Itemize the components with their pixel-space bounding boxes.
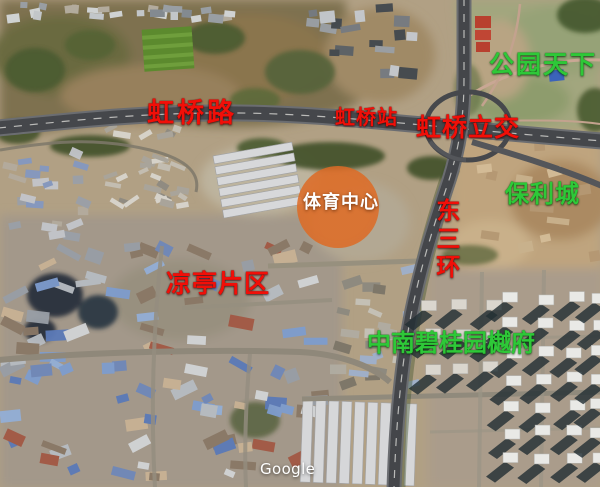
map-label-sports-center: 体育中心 <box>303 193 379 212</box>
map-label-zhongnan-biguiyuan-yuefu: 中南碧桂园樾府 <box>367 331 535 357</box>
map-label-park-tianxia: 公园天下 <box>489 51 597 78</box>
map-label-poly-city: 保利城 <box>505 182 580 208</box>
map-label-east-third-ring: 东三环 <box>432 198 458 282</box>
map-label-hongqiao-road: 虹桥路 <box>147 99 237 128</box>
satellite-map[interactable]: 虹桥路 虹桥站 虹桥立交 公园天下 保利城 体育中心 凉亭片区 东三环 中南碧桂… <box>0 0 600 487</box>
map-label-liangting-area: 凉亭片区 <box>166 270 270 297</box>
map-label-hongqiao-interchange: 虹桥立交 <box>416 114 520 141</box>
farm-field <box>142 26 195 71</box>
google-watermark: Google <box>260 460 315 478</box>
map-label-hongqiao-station: 虹桥站 <box>335 107 398 129</box>
